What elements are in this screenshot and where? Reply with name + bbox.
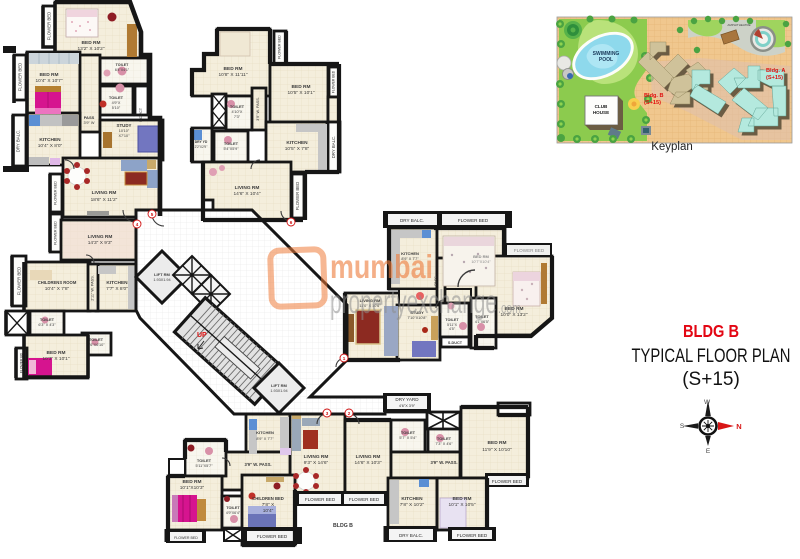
svg-text:10'5" X 7'8": 10'5" X 7'8"	[285, 146, 310, 152]
svg-text:5'7" X 5'4": 5'7" X 5'4"	[399, 436, 417, 440]
svg-text:4'1"X6'5": 4'1"X6'5"	[475, 320, 490, 324]
svg-text:PASS: PASS	[84, 115, 95, 120]
svg-text:KITCHEN: KITCHEN	[39, 137, 61, 143]
svg-text:Bldg. A: Bldg. A	[766, 68, 785, 74]
svg-text:LIVING RM: LIVING RM	[88, 234, 113, 240]
svg-text:14'6" X 10'4": 14'6" X 10'4"	[233, 191, 260, 197]
svg-text:LIVING RM: LIVING RM	[235, 185, 260, 191]
svg-text:1.93X1.94: 1.93X1.94	[153, 278, 170, 282]
svg-text:7'3" X 4'6": 7'3" X 4'6"	[435, 442, 453, 446]
svg-text:BLDG B: BLDG B	[333, 523, 353, 529]
svg-text:FLOWER BED: FLOWER BED	[174, 536, 198, 540]
svg-text:DRY BALC.: DRY BALC.	[16, 130, 21, 153]
svg-text:BED RM: BED RM	[47, 350, 66, 356]
svg-text:TOILET: TOILET	[109, 95, 124, 100]
svg-text:CHILDRENS ROOM: CHILDRENS ROOM	[38, 280, 77, 285]
svg-text:7'8" X: 7'8" X	[262, 502, 275, 508]
svg-text:FLOWER BED: FLOWER BED	[514, 248, 545, 253]
svg-text:BED RM: BED RM	[488, 440, 507, 446]
svg-text:5'4"X5'9": 5'4"X5'9"	[223, 147, 239, 151]
svg-text:BED RM: BED RM	[82, 40, 101, 46]
svg-text:18'6" X 11'2": 18'6" X 11'2"	[91, 197, 118, 203]
svg-text:(S+15): (S+15)	[682, 369, 740, 390]
svg-text:FLOWER BED: FLOWER BED	[17, 267, 22, 295]
svg-text:UP: UP	[197, 332, 207, 339]
svg-text:propertyexchange: propertyexchange	[330, 283, 497, 320]
svg-text:4'9"X6'4": 4'9"X6'4"	[226, 511, 241, 515]
svg-text:W: W	[704, 399, 711, 406]
svg-text:2'11" W. PASS.: 2'11" W. PASS.	[91, 275, 95, 301]
svg-text:TOILET: TOILET	[437, 436, 452, 441]
svg-text:Bldg. B: Bldg. B	[644, 93, 664, 99]
svg-text:7'7" X 8'0": 7'7" X 8'0"	[106, 286, 128, 292]
svg-text:10'1"X10'3": 10'1"X10'3"	[180, 485, 205, 491]
svg-text:LIVING RM: LIVING RM	[92, 190, 117, 196]
svg-text:10'3" X 10'1": 10'3" X 10'1"	[42, 356, 69, 362]
svg-text:X7'10": X7'10"	[119, 134, 131, 138]
svg-text:TOILET: TOILET	[226, 506, 240, 510]
svg-text:DRY YD: DRY YD	[195, 140, 208, 144]
svg-text:(S+15): (S+15)	[766, 75, 783, 81]
svg-text:mumbai: mumbai	[330, 248, 433, 285]
svg-text:S.DUCT: S.DUCT	[139, 107, 143, 122]
svg-text:KITCHEN: KITCHEN	[256, 430, 274, 435]
svg-text:BED RM: BED RM	[183, 479, 202, 485]
svg-text:2'2"X2'9": 2'2"X2'9"	[195, 145, 208, 149]
svg-text:5'6"X6'10": 5'6"X6'10"	[87, 343, 105, 347]
svg-text:2: 2	[348, 411, 351, 416]
svg-text:14'6" X 10'3": 14'6" X 10'3"	[354, 460, 381, 466]
svg-text:FLOWER BED: FLOWER BED	[349, 497, 380, 502]
svg-text:TOILET: TOILET	[401, 430, 416, 435]
svg-text:FLOWER BED: FLOWER BED	[305, 497, 336, 502]
svg-text:13'2" X 10'2": 13'2" X 10'2"	[77, 46, 104, 52]
svg-text:3'9" W. PASS.: 3'9" W. PASS.	[256, 97, 260, 121]
svg-text:BED RM: BED RM	[224, 66, 243, 72]
svg-text:10'1" X 10'5": 10'1" X 10'5"	[448, 502, 475, 508]
svg-text:CHILDREN BED: CHILDREN BED	[252, 496, 284, 501]
svg-text:DRY BALC.: DRY BALC.	[400, 218, 424, 223]
svg-text:BED RM: BED RM	[473, 254, 489, 259]
svg-text:N: N	[736, 422, 741, 431]
svg-text:3'9" W. PASS.: 3'9" W. PASS.	[430, 460, 457, 465]
svg-text:5: 5	[151, 212, 154, 217]
svg-text:11'9" X 10'10": 11'9" X 10'10"	[482, 447, 512, 453]
svg-text:10'4": 10'4"	[263, 508, 274, 514]
svg-text:6'4"X4'1": 6'4"X4'1"	[115, 68, 130, 72]
svg-text:S: S	[680, 423, 685, 430]
svg-text:TOILET: TOILET	[197, 458, 212, 463]
svg-text:FLOWER BED: FLOWER BED	[47, 12, 52, 40]
svg-text:4'6"X 3'9": 4'6"X 3'9"	[399, 404, 416, 408]
svg-text:FLOWER BED: FLOWER BED	[278, 35, 282, 59]
svg-text:BED RM: BED RM	[453, 496, 472, 502]
svg-text:10'5" X 10'1": 10'5" X 10'1"	[287, 90, 314, 96]
svg-text:TOILET: TOILET	[40, 317, 55, 322]
svg-text:5'10": 5'10"	[112, 106, 121, 110]
svg-text:(S+15): (S+15)	[644, 100, 661, 106]
svg-text:10'8" X 11'11": 10'8" X 11'11"	[218, 72, 247, 78]
svg-text:1: 1	[343, 356, 346, 361]
svg-text:10'4" X 7'8": 10'4" X 7'8"	[45, 286, 70, 292]
svg-text:7'3": 7'3"	[234, 115, 241, 119]
svg-text:FLOWER BED: FLOWER BED	[492, 479, 523, 484]
svg-text:Keyplan: Keyplan	[651, 141, 693, 153]
svg-text:LIFT RM: LIFT RM	[271, 383, 287, 388]
svg-text:3'9" W: 3'9" W	[84, 121, 95, 125]
svg-text:DRY YARD: DRY YARD	[395, 397, 419, 402]
svg-text:POOL: POOL	[599, 57, 613, 63]
svg-text:KITCHEN: KITCHEN	[106, 280, 128, 286]
svg-text:FLOWER BED: FLOWER BED	[18, 63, 23, 91]
svg-text:3'9" W. PASS.: 3'9" W. PASS.	[244, 462, 271, 467]
svg-text:4'5": 4'5"	[449, 327, 456, 331]
svg-text:TOILET: TOILET	[116, 63, 130, 67]
svg-text:8'9" X 7'7": 8'9" X 7'7"	[256, 437, 274, 441]
svg-text:HOUSE: HOUSE	[593, 110, 609, 115]
svg-text:.com: .com	[498, 300, 521, 317]
svg-text:DRY BALC.: DRY BALC.	[331, 136, 336, 159]
svg-text:BLDG B: BLDG B	[683, 321, 739, 341]
svg-text:LIFT RM: LIFT RM	[154, 272, 170, 277]
svg-text:4'10"X: 4'10"X	[232, 110, 243, 114]
svg-text:4'9"X: 4'9"X	[112, 101, 121, 105]
svg-text:TOILET: TOILET	[89, 337, 104, 342]
svg-text:KITCHEN: KITCHEN	[286, 140, 308, 146]
svg-text:FLOWER BED: FLOWER BED	[295, 182, 300, 210]
svg-text:AMPHITHEATRE: AMPHITHEATRE	[727, 23, 750, 27]
svg-text:3: 3	[326, 411, 329, 416]
svg-text:10'7"X10'4": 10'7"X10'4"	[471, 260, 491, 264]
svg-text:10'10": 10'10"	[119, 129, 130, 133]
svg-text:10'4" X 8'0": 10'4" X 8'0"	[38, 143, 63, 149]
svg-text:E: E	[706, 448, 711, 455]
svg-text:9'3" X 14'6": 9'3" X 14'6"	[304, 460, 329, 466]
svg-text:FLOWER BED: FLOWER BED	[458, 218, 489, 223]
svg-text:DRY BALC.: DRY BALC.	[399, 533, 423, 538]
svg-text:6'3" X 4'3": 6'3" X 4'3"	[38, 323, 56, 327]
svg-text:7'8" X 10'2": 7'8" X 10'2"	[400, 502, 425, 508]
svg-text:6: 6	[290, 220, 293, 225]
svg-text:CLUB: CLUB	[595, 104, 608, 109]
svg-text:10'4" X 10'7": 10'4" X 10'7"	[35, 78, 62, 84]
svg-text:5'11"X5'7": 5'11"X5'7"	[196, 464, 214, 468]
svg-text:LIVING RM: LIVING RM	[356, 454, 381, 460]
svg-text:1.93X1.94: 1.93X1.94	[270, 389, 287, 393]
svg-text:4: 4	[136, 222, 139, 227]
svg-text:BED RM: BED RM	[40, 72, 59, 78]
svg-text:FLOWER BED: FLOWER BED	[257, 534, 288, 539]
svg-text:LIVING RM: LIVING RM	[304, 454, 329, 460]
svg-text:TOILET: TOILET	[230, 104, 245, 109]
svg-text:STUDY: STUDY	[117, 123, 132, 128]
svg-text:TOILET: TOILET	[224, 141, 239, 146]
svg-text:14'3" X 9'3": 14'3" X 9'3"	[88, 240, 113, 246]
svg-text:BED RM: BED RM	[292, 84, 311, 90]
svg-text:FLOWER BED: FLOWER BED	[457, 533, 488, 538]
svg-text:TYPICAL FLOOR PLAN: TYPICAL FLOOR PLAN	[632, 346, 791, 367]
svg-text:S.DUCT: S.DUCT	[448, 341, 463, 345]
svg-text:KITCHEN: KITCHEN	[401, 496, 423, 502]
svg-text:FLOWER BED: FLOWER BED	[332, 70, 336, 93]
svg-text:FLOWER BED: FLOWER BED	[54, 181, 58, 205]
svg-text:FLOWER BED: FLOWER BED	[54, 221, 58, 245]
